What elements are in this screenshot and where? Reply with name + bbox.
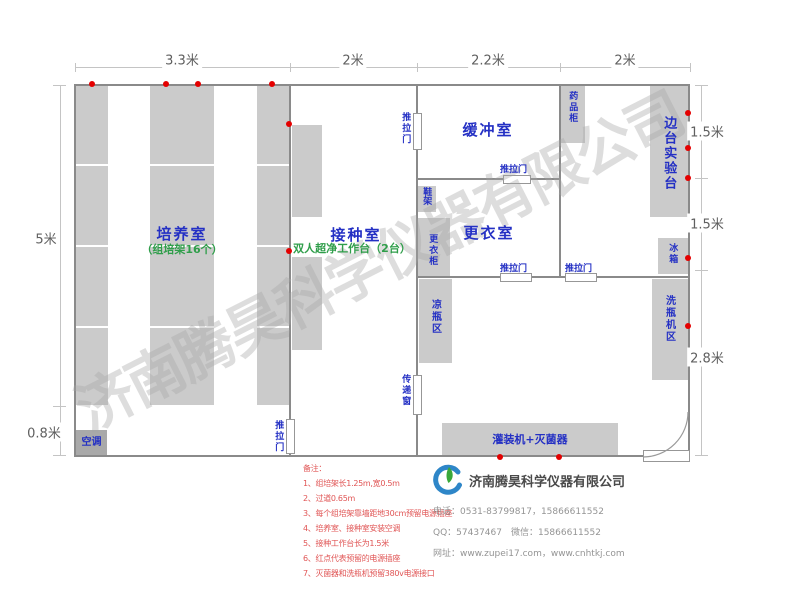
wall-cultivation-inoculation <box>289 84 291 457</box>
fridge-label: 冰箱 <box>666 243 677 265</box>
filling-sterilizer-label: 灌装机+灭菌器 <box>442 433 618 447</box>
dimension-tick <box>695 178 708 179</box>
power-socket-dot <box>685 175 691 181</box>
dim-top-4: 2米 <box>611 50 638 69</box>
power-socket-dot <box>195 81 201 87</box>
clean-bench <box>292 257 322 350</box>
company-phone: 电话：0531-83799817，15866611552 <box>433 504 663 517</box>
bottle-washer-label: 洗瓶机区 <box>662 295 675 343</box>
dim-left-height: 5米 <box>32 229 59 248</box>
dimension-tick <box>695 85 708 86</box>
room-title-buffer: 缓冲室 <box>438 119 538 140</box>
wall-buffer-changing <box>417 178 560 180</box>
power-socket-dot <box>685 255 691 261</box>
power-socket-dot <box>286 121 292 127</box>
shoe-rack-label: 鞋架 <box>420 187 431 205</box>
dimension-tick <box>695 455 708 456</box>
wall-bottom <box>74 455 690 457</box>
dimension-tick <box>690 63 691 72</box>
sliding-door <box>503 175 531 184</box>
air-conditioner-label: 空调 <box>76 437 107 450</box>
dimension-tick <box>53 85 66 86</box>
medicine-cabinet-label: 药品柜 <box>566 91 577 124</box>
sliding-door-label: 推拉门 <box>565 264 592 275</box>
culture-rack-column <box>76 85 108 405</box>
wall-changing-bottomroom <box>417 276 690 278</box>
dim-right-2: 1.5米 <box>687 214 727 233</box>
bottle-cooling-label: 凉瓶区 <box>428 299 441 335</box>
sliding-door <box>413 113 422 150</box>
note-item: 7、灭菌器和洗瓶机预留380v电源接口 <box>303 566 483 581</box>
dimension-tick <box>417 63 418 72</box>
power-socket-dot <box>89 81 95 87</box>
dimension-tick <box>560 63 561 72</box>
power-socket-dot <box>556 454 562 460</box>
transfer-window-label: 传递窗 <box>399 374 410 407</box>
dimension-tick <box>695 270 708 271</box>
dimension-tick <box>75 63 76 72</box>
dim-right-1: 1.5米 <box>687 122 727 141</box>
dimension-tick <box>53 406 66 407</box>
company-info: 济南腾昊科学仪器有限公司 电话：0531-83799817，1586661155… <box>433 464 663 559</box>
swing-door-arc <box>643 412 689 458</box>
sliding-door-label: 推拉门 <box>500 165 527 176</box>
side-bench-label: 边台实验台 <box>660 116 676 191</box>
transfer-window <box>413 375 422 415</box>
dimension-tick <box>53 455 66 456</box>
dimension-tick <box>290 63 291 72</box>
power-socket-dot <box>685 145 691 151</box>
floor-plan: 济南腾昊科学仪器有限公司 3.3米 2米 2.2米 2米 5米 0.8米 1.5… <box>0 0 800 600</box>
sliding-door-label: 推拉门 <box>500 264 527 275</box>
room-subtitle-inoculation: 双人超净工作台（2台） <box>277 240 427 256</box>
clean-bench <box>292 125 322 217</box>
wall-buffer-right <box>559 84 561 278</box>
company-logo-icon <box>433 464 463 496</box>
sliding-door-label: 推拉门 <box>272 420 283 453</box>
wall-left <box>74 84 76 457</box>
dim-top-3: 2.2米 <box>468 50 508 69</box>
dim-top-2: 2米 <box>339 50 366 69</box>
power-socket-dot <box>685 110 691 116</box>
power-socket-dot <box>685 323 691 329</box>
power-socket-dot <box>269 81 275 87</box>
company-name: 济南腾昊科学仪器有限公司 <box>469 471 625 490</box>
room-subtitle-cultivation: （组培架16个） <box>112 241 252 257</box>
dim-left-aisle: 0.8米 <box>24 423 64 442</box>
wardrobe-label: 更衣柜 <box>426 234 437 267</box>
dim-right-3: 2.8米 <box>687 348 727 367</box>
power-socket-dot <box>163 81 169 87</box>
company-website: 网址：www.zupei17.com，www.cnhtkj.com <box>433 546 663 559</box>
company-qq-wechat: QQ：57437467 微信：15866611552 <box>433 525 663 538</box>
power-socket-dot <box>286 248 292 254</box>
sliding-door <box>286 419 295 454</box>
sliding-door-label: 推拉门 <box>399 112 410 145</box>
dimension-line-left <box>60 85 61 456</box>
room-title-changing: 更衣室 <box>439 222 539 243</box>
dim-top-1: 3.3米 <box>162 50 202 69</box>
power-socket-dot <box>497 454 503 460</box>
